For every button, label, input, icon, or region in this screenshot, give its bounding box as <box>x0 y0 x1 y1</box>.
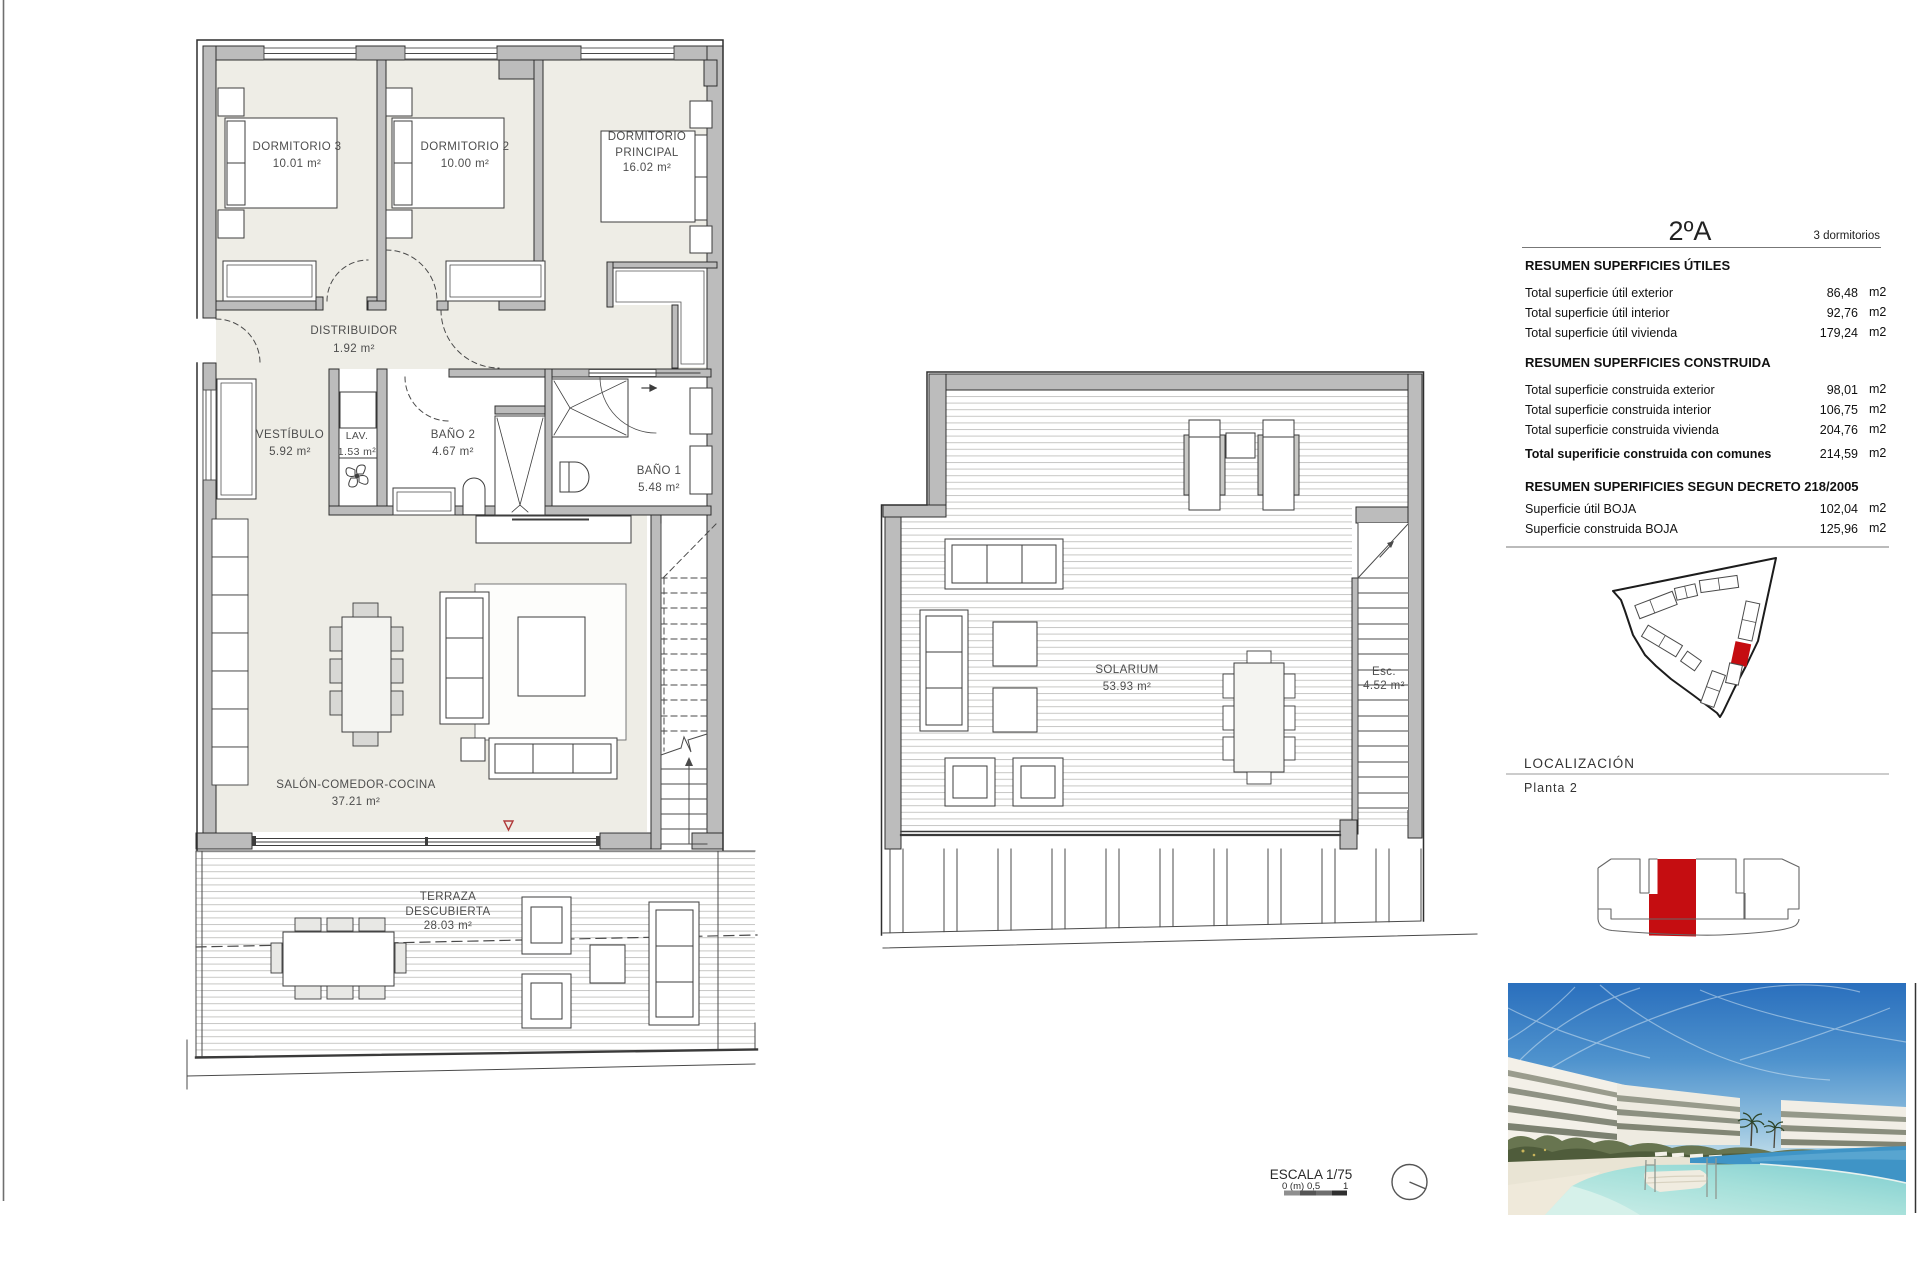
svg-text:DESCUBIERTA: DESCUBIERTA <box>405 906 490 918</box>
svg-text:ESCALA 1/75: ESCALA 1/75 <box>1270 1167 1353 1182</box>
svg-text:BAÑO 2: BAÑO 2 <box>431 428 476 441</box>
svg-text:TERRAZA: TERRAZA <box>420 891 476 903</box>
svg-text:m2: m2 <box>1869 501 1886 515</box>
svg-text:1.53 m²: 1.53 m² <box>338 446 376 458</box>
svg-text:DORMITORIO 3: DORMITORIO 3 <box>253 141 342 153</box>
svg-text:5.92 m²: 5.92 m² <box>269 446 311 458</box>
svg-text:2ºA: 2ºA <box>1669 216 1712 246</box>
svg-text:m2: m2 <box>1869 521 1886 535</box>
svg-text:53.93 m²: 53.93 m² <box>1103 681 1152 693</box>
svg-text:m2: m2 <box>1869 305 1886 319</box>
svg-text:Total superficie útil vivienda: Total superficie útil vivienda <box>1525 326 1677 340</box>
svg-text:DORMITORIO: DORMITORIO <box>608 131 687 143</box>
svg-text:3 dormitorios: 3 dormitorios <box>1814 230 1881 242</box>
svg-text:0,5: 0,5 <box>1307 1181 1320 1192</box>
svg-text:SALÓN-COMEDOR-COCINA: SALÓN-COMEDOR-COCINA <box>276 778 435 791</box>
svg-text:Total superficie construida in: Total superficie construida interior <box>1525 403 1711 417</box>
svg-text:m2: m2 <box>1869 446 1886 460</box>
svg-text:Total superficie construida ex: Total superficie construida exterior <box>1525 383 1715 397</box>
svg-text:m2: m2 <box>1869 325 1886 339</box>
svg-text:10.00 m²: 10.00 m² <box>441 158 490 170</box>
svg-text:Total superificie construida c: Total superificie construida con comunes <box>1525 447 1771 461</box>
svg-text:1.92 m²: 1.92 m² <box>333 343 375 355</box>
svg-text:204,76: 204,76 <box>1820 423 1858 437</box>
svg-text:m2: m2 <box>1869 382 1886 396</box>
svg-text:LAV.: LAV. <box>346 430 369 442</box>
svg-text:4.52 m²: 4.52 m² <box>1363 680 1405 692</box>
svg-text:RESUMEN SUPERFICIES CONSTRUIDA: RESUMEN SUPERFICIES CONSTRUIDA <box>1525 355 1771 370</box>
svg-text:4.67 m²: 4.67 m² <box>432 446 474 458</box>
svg-text:86,48: 86,48 <box>1827 286 1858 300</box>
svg-text:10.01 m²: 10.01 m² <box>273 158 322 170</box>
svg-text:5.48 m²: 5.48 m² <box>638 482 680 494</box>
svg-text:DORMITORIO 2: DORMITORIO 2 <box>421 141 510 153</box>
svg-text:0 (m): 0 (m) <box>1282 1181 1304 1192</box>
svg-text:92,76: 92,76 <box>1827 306 1858 320</box>
svg-text:DISTRIBUIDOR: DISTRIBUIDOR <box>310 325 397 337</box>
svg-text:106,75: 106,75 <box>1820 403 1858 417</box>
svg-text:PRINCIPAL: PRINCIPAL <box>615 147 679 159</box>
svg-text:LOCALIZACIÓN: LOCALIZACIÓN <box>1524 756 1635 771</box>
svg-text:Superficie útil BOJA: Superficie útil BOJA <box>1525 502 1637 516</box>
svg-text:VESTÍBULO: VESTÍBULO <box>256 428 324 441</box>
svg-text:125,96: 125,96 <box>1820 522 1858 536</box>
svg-text:Esc.: Esc. <box>1372 666 1396 678</box>
svg-text:m2: m2 <box>1869 402 1886 416</box>
svg-text:SOLARIUM: SOLARIUM <box>1095 664 1158 676</box>
svg-text:1: 1 <box>1343 1181 1348 1192</box>
svg-text:179,24: 179,24 <box>1820 326 1858 340</box>
svg-text:m2: m2 <box>1869 422 1886 436</box>
svg-text:98,01: 98,01 <box>1827 383 1858 397</box>
svg-text:m2: m2 <box>1869 285 1886 299</box>
svg-text:37.21 m²: 37.21 m² <box>332 796 381 808</box>
svg-text:102,04: 102,04 <box>1820 502 1858 516</box>
svg-text:RESUMEN SUPERIFICIES SEGUN DEC: RESUMEN SUPERIFICIES SEGUN DECRETO 218/2… <box>1525 479 1859 494</box>
svg-text:RESUMEN SUPERFICIES ÚTILES: RESUMEN SUPERFICIES ÚTILES <box>1525 258 1730 273</box>
svg-text:Superficie construida BOJA: Superficie construida BOJA <box>1525 522 1679 536</box>
svg-text:Total superficie útil interior: Total superficie útil interior <box>1525 306 1670 320</box>
svg-text:28.03 m²: 28.03 m² <box>424 920 473 932</box>
svg-text:16.02 m²: 16.02 m² <box>623 162 672 174</box>
svg-text:214,59: 214,59 <box>1820 447 1858 461</box>
svg-text:Total superficie útil exterior: Total superficie útil exterior <box>1525 286 1673 300</box>
svg-text:BAÑO 1: BAÑO 1 <box>637 464 682 477</box>
svg-text:Total superficie construida vi: Total superficie construida vivienda <box>1525 423 1719 437</box>
svg-text:Planta 2: Planta 2 <box>1524 781 1578 795</box>
